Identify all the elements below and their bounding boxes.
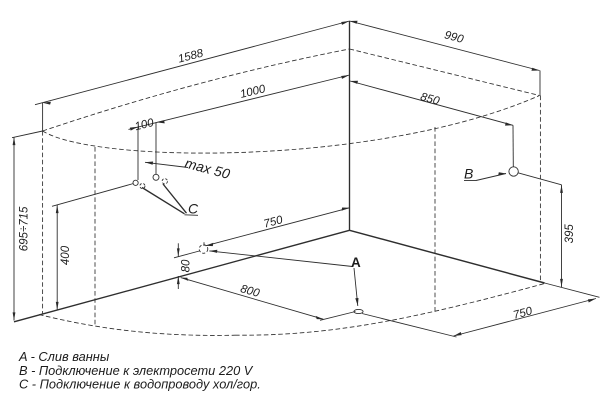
svg-text:695÷715: 695÷715 [18,206,30,251]
svg-text:990: 990 [443,29,465,46]
svg-text:B: B [464,166,473,182]
svg-text:400: 400 [60,245,72,265]
svg-text:100: 100 [134,117,156,133]
svg-text:C - Подключение к водопроводу: C - Подключение к водопроводу хол/гор. [19,376,261,391]
svg-text:80: 80 [180,259,192,272]
svg-text:800: 800 [239,283,261,300]
svg-text:850: 850 [419,91,441,108]
svg-text:750: 750 [262,214,284,231]
svg-text:max 50: max 50 [183,155,232,182]
svg-text:395: 395 [564,224,576,244]
svg-text:A: A [351,255,361,270]
svg-text:C: C [188,201,199,217]
svg-text:750: 750 [512,305,534,322]
